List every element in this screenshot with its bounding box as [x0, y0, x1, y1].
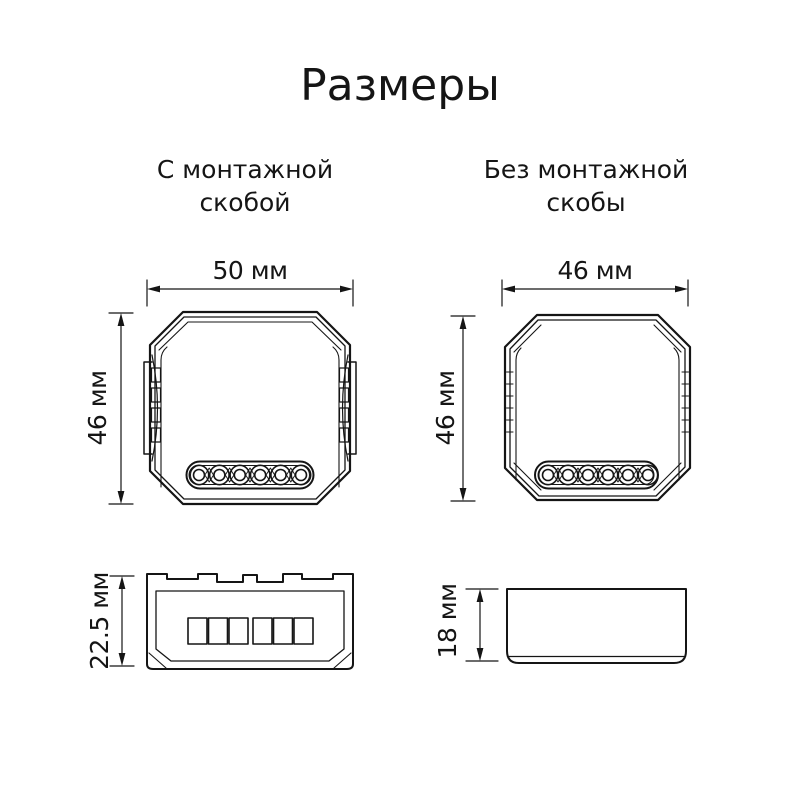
- width-dimension: [147, 280, 353, 306]
- device-profile: [147, 574, 353, 669]
- height-dimension: [110, 576, 134, 666]
- arrowhead-right: [340, 286, 353, 293]
- side-view-without-bracket: [466, 589, 686, 663]
- arrowhead-up: [118, 313, 125, 326]
- device-profile: [507, 589, 686, 663]
- terminal-block: [187, 462, 314, 489]
- arrowhead-left: [502, 286, 515, 293]
- arrowhead-down: [118, 491, 125, 504]
- dimensions-diagram-page: Размеры С монтажной скобой Без монтажной…: [0, 0, 800, 800]
- height-dimension: [451, 316, 475, 501]
- height-dimension: [109, 313, 133, 504]
- arrowhead-up: [460, 316, 467, 329]
- arrowhead-down: [477, 648, 484, 661]
- mounting-tab-left: [144, 355, 161, 461]
- arrowhead-up: [119, 576, 126, 589]
- diagram-linework: [0, 0, 800, 800]
- arrowhead-down: [119, 653, 126, 666]
- top-view-with-bracket: [109, 280, 356, 504]
- mounting-tab-right: [340, 355, 357, 461]
- side-view-with-bracket: [110, 574, 353, 669]
- terminal-slots: [188, 618, 313, 644]
- width-dimension: [502, 280, 688, 306]
- arrowhead-right: [675, 286, 688, 293]
- arrowhead-up: [477, 589, 484, 602]
- terminal-block: [535, 462, 658, 489]
- top-view-without-bracket: [451, 280, 690, 501]
- arrowhead-left: [147, 286, 160, 293]
- arrowhead-down: [460, 488, 467, 501]
- height-dimension: [466, 589, 498, 661]
